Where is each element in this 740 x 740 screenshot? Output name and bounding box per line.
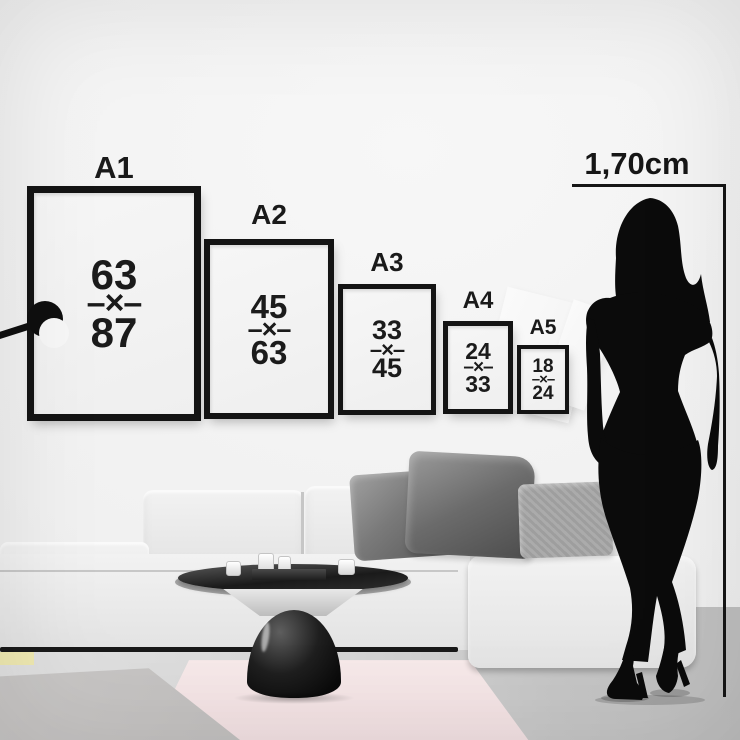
poster-height-value: 87 <box>91 317 138 348</box>
candle <box>226 561 241 576</box>
dark-velvet-pillow <box>404 451 535 559</box>
poster-frame-a4: 24 –×– 33 <box>443 321 513 414</box>
yellow-floor-object <box>0 652 34 665</box>
poster-frame-a3: 33 –×– 45 <box>338 284 436 415</box>
wall-lamp-icon <box>0 290 90 370</box>
poster-height-value: 24 <box>532 386 553 401</box>
frame-label-a1: A1 <box>27 150 201 186</box>
frame-label-a3: A3 <box>338 247 436 278</box>
candle <box>338 559 355 575</box>
living-room-scene: 1,70cm A1 A2 A3 A4 A5 63 –×– 87 45 –×– 6… <box>0 0 740 740</box>
poster-height-value: 45 <box>372 358 402 379</box>
poster-height-value: 33 <box>465 375 491 393</box>
sofa-base-shadow <box>0 647 458 652</box>
table-tray <box>252 569 326 580</box>
poster-frame-a5: 18 –×– 24 <box>517 345 569 414</box>
woman-silhouette <box>570 196 730 714</box>
height-measure-label: 1,70cm <box>552 146 722 182</box>
frame-label-a2: A2 <box>204 199 334 231</box>
table-floor-shadow <box>233 692 355 704</box>
frame-label-a4: A4 <box>443 287 513 315</box>
poster-height-value: 63 <box>251 340 288 365</box>
poster-frame-a2: 45 –×– 63 <box>204 239 334 419</box>
frame-label-a5: A5 <box>517 316 569 340</box>
measure-line-horizontal <box>572 184 726 187</box>
